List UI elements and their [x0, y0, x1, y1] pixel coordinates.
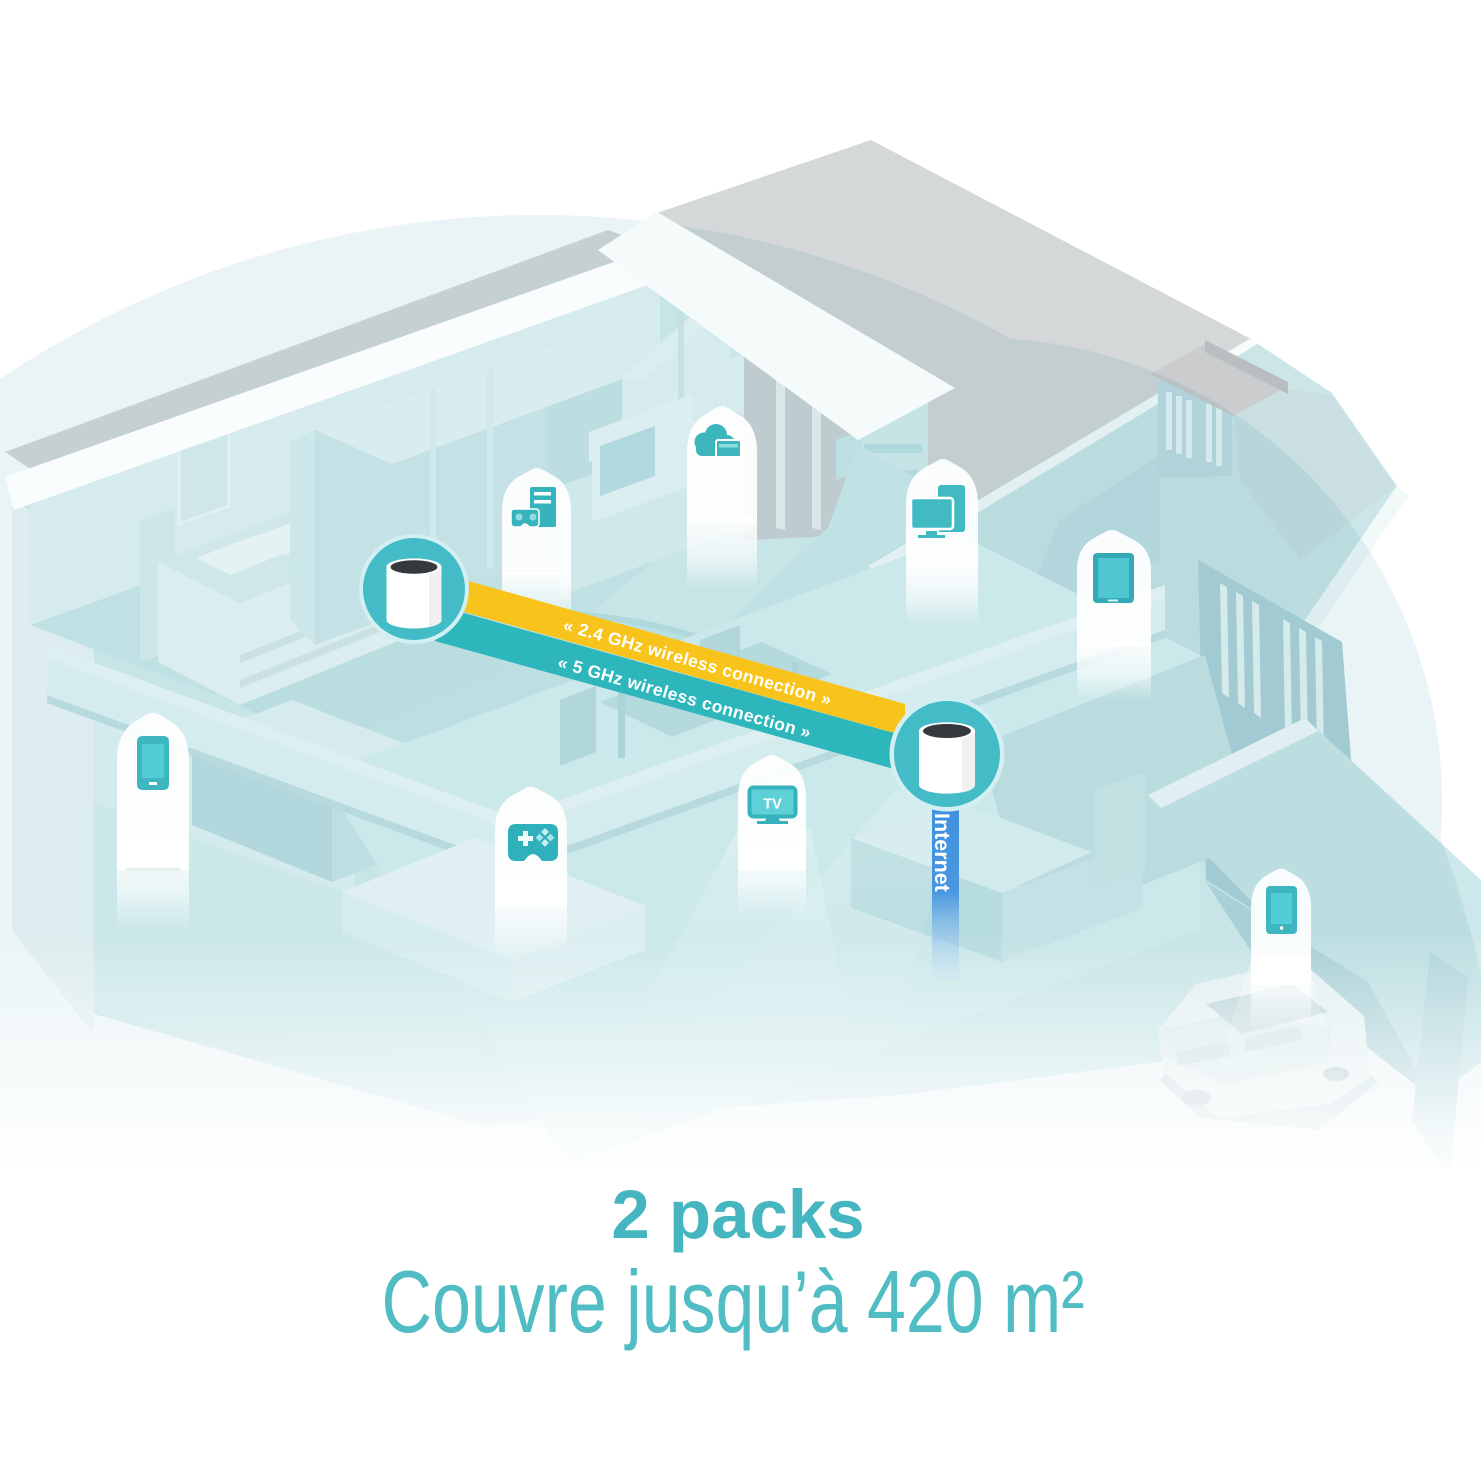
svg-text:2 packs: 2 packs: [611, 1176, 864, 1253]
svg-text:Internet: Internet: [930, 813, 954, 892]
svg-text:Couvre jusqu’à 420 m²: Couvre jusqu’à 420 m²: [382, 1252, 1085, 1351]
svg-text:TV: TV: [763, 797, 782, 813]
